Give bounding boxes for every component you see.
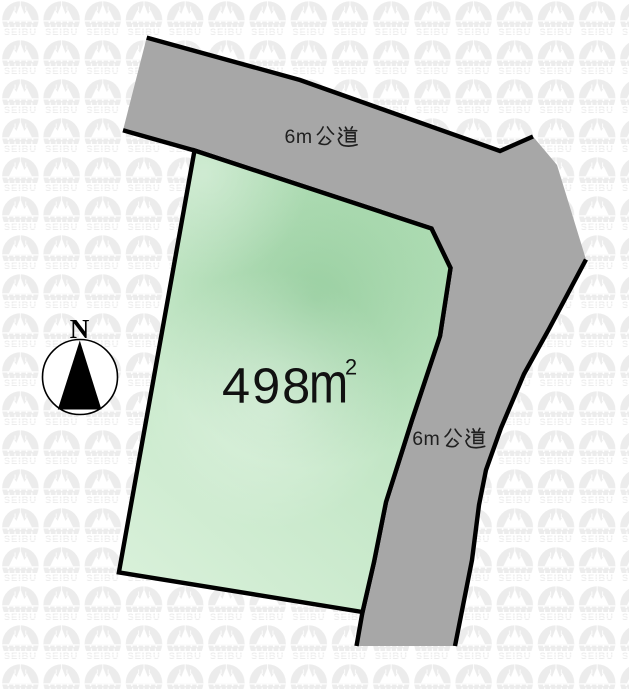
svg-text:m: m bbox=[309, 353, 348, 416]
svg-text:6m: 6m bbox=[285, 126, 313, 148]
svg-text:498: 498 bbox=[222, 357, 312, 414]
svg-text:2: 2 bbox=[345, 355, 357, 380]
svg-text:N: N bbox=[70, 314, 90, 344]
svg-text:6m: 6m bbox=[412, 428, 440, 450]
